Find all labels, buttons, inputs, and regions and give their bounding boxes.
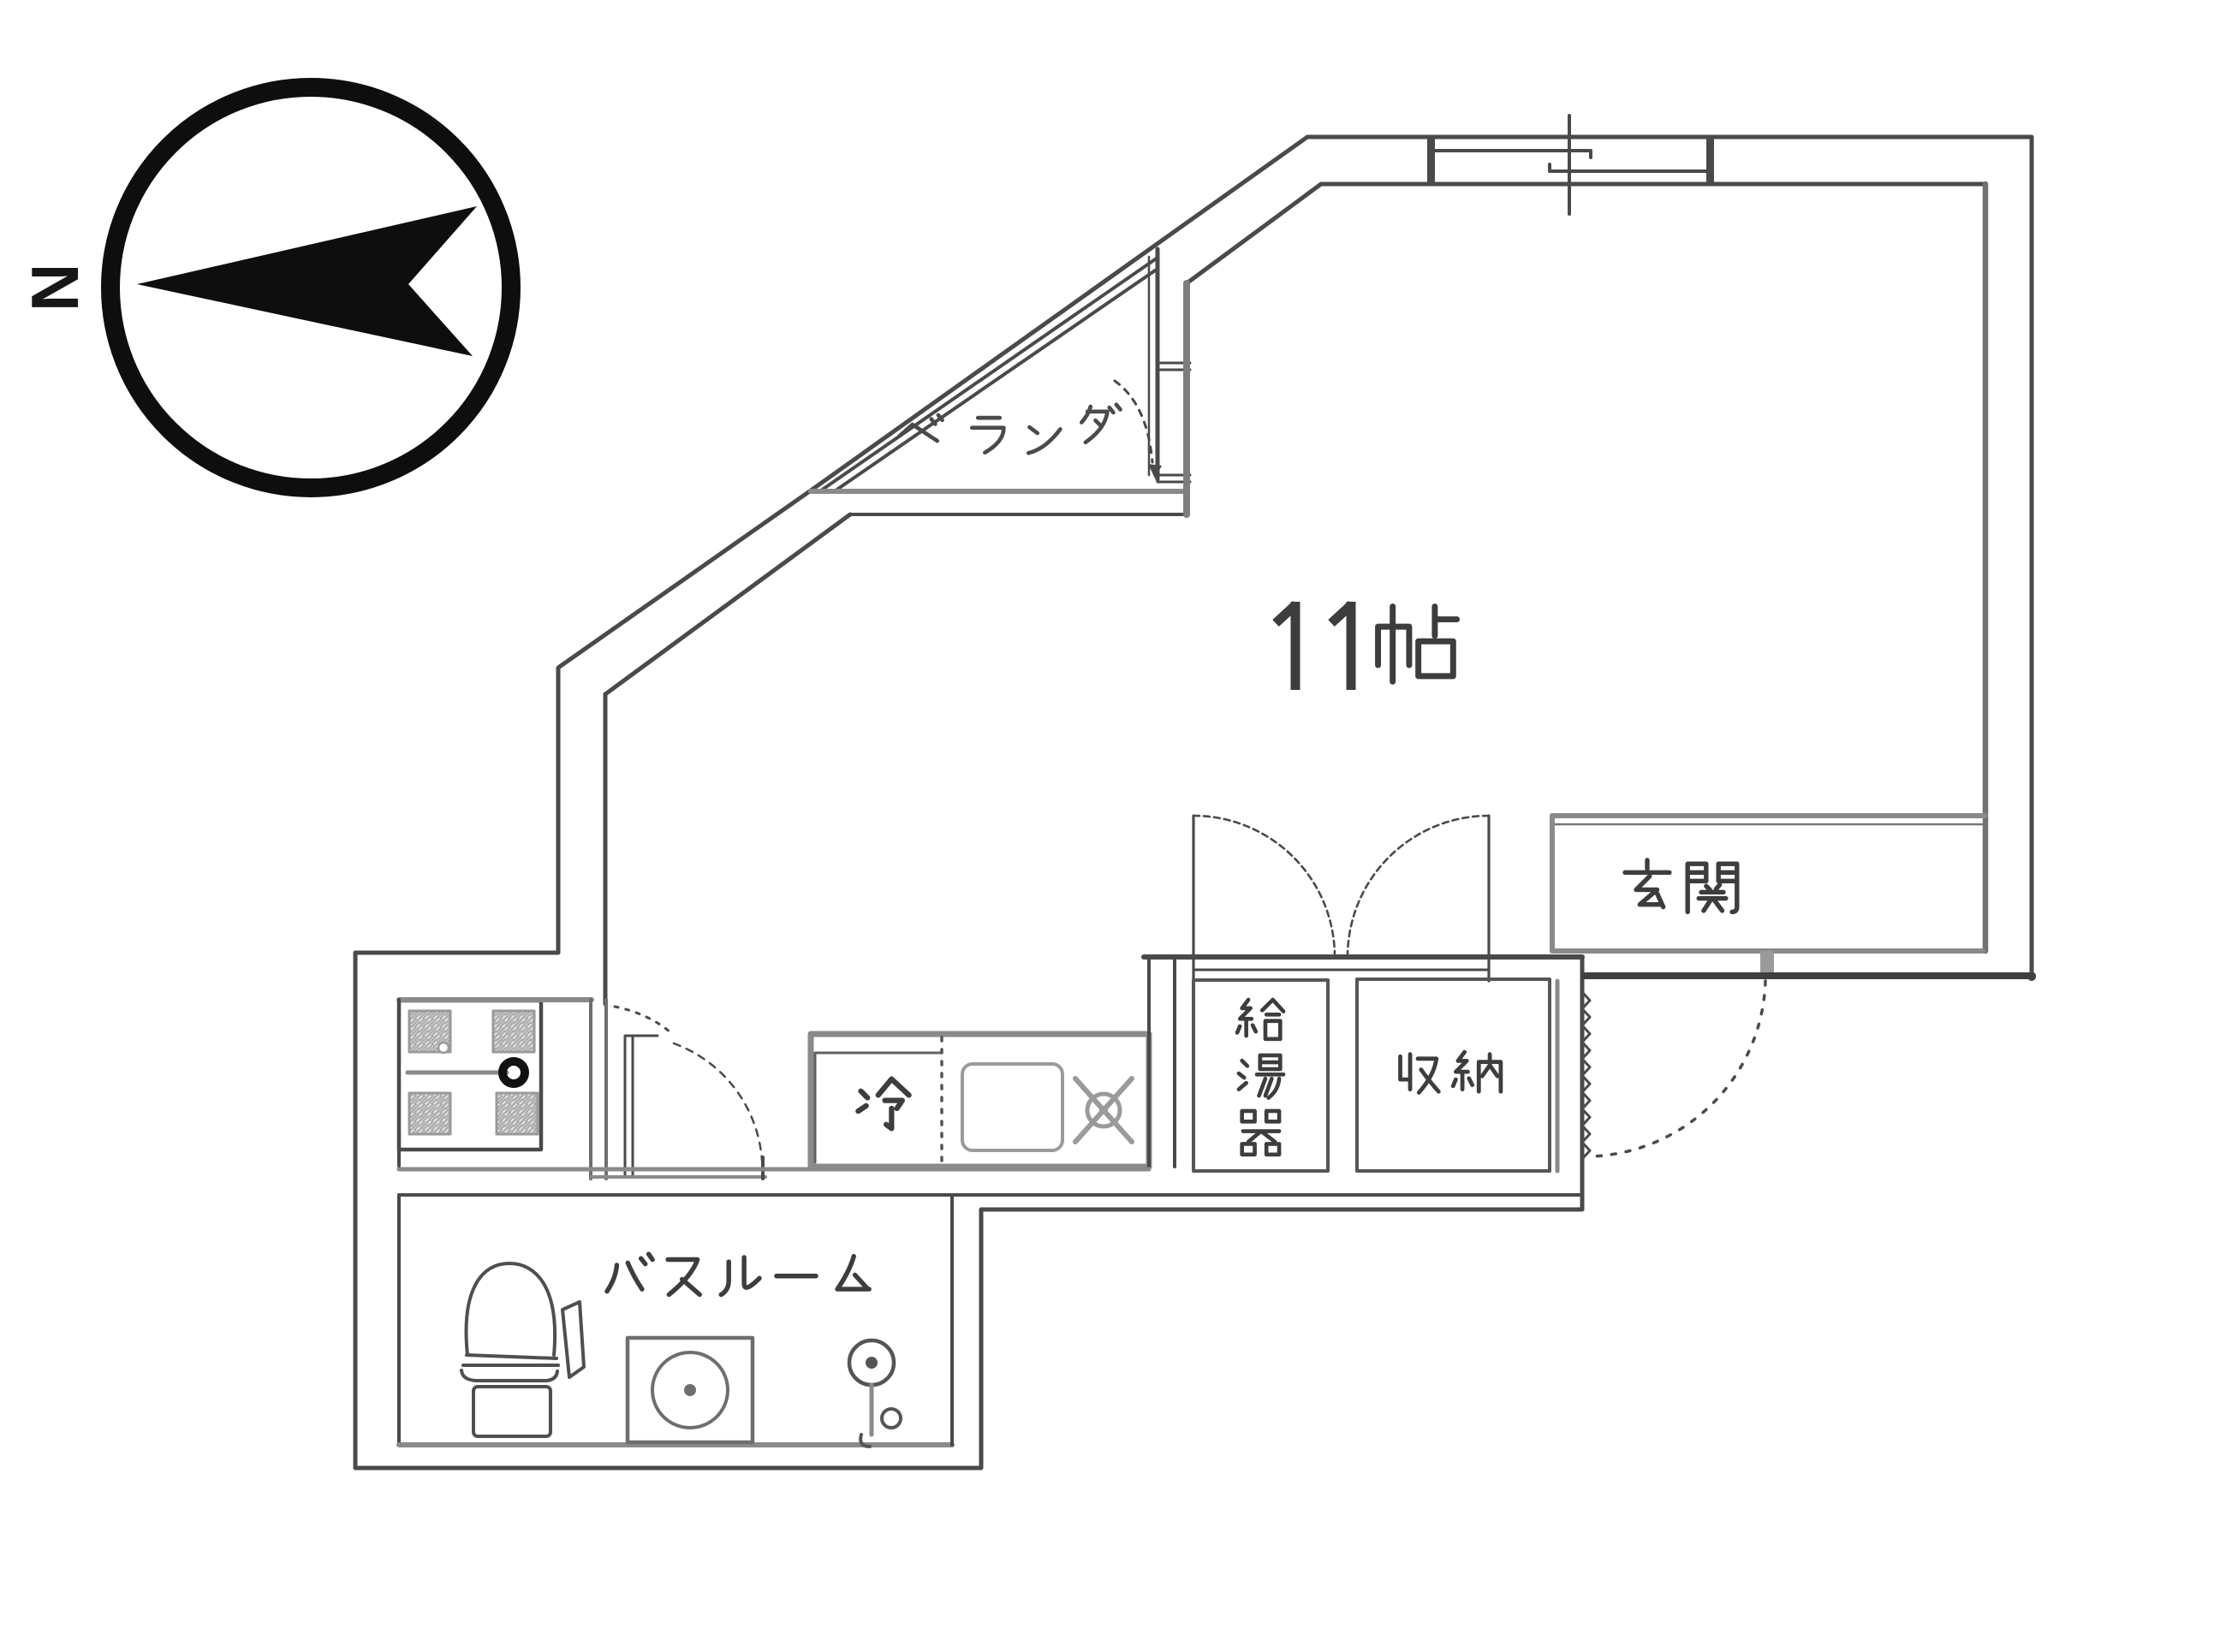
svg-text:N: N xyxy=(17,264,92,312)
